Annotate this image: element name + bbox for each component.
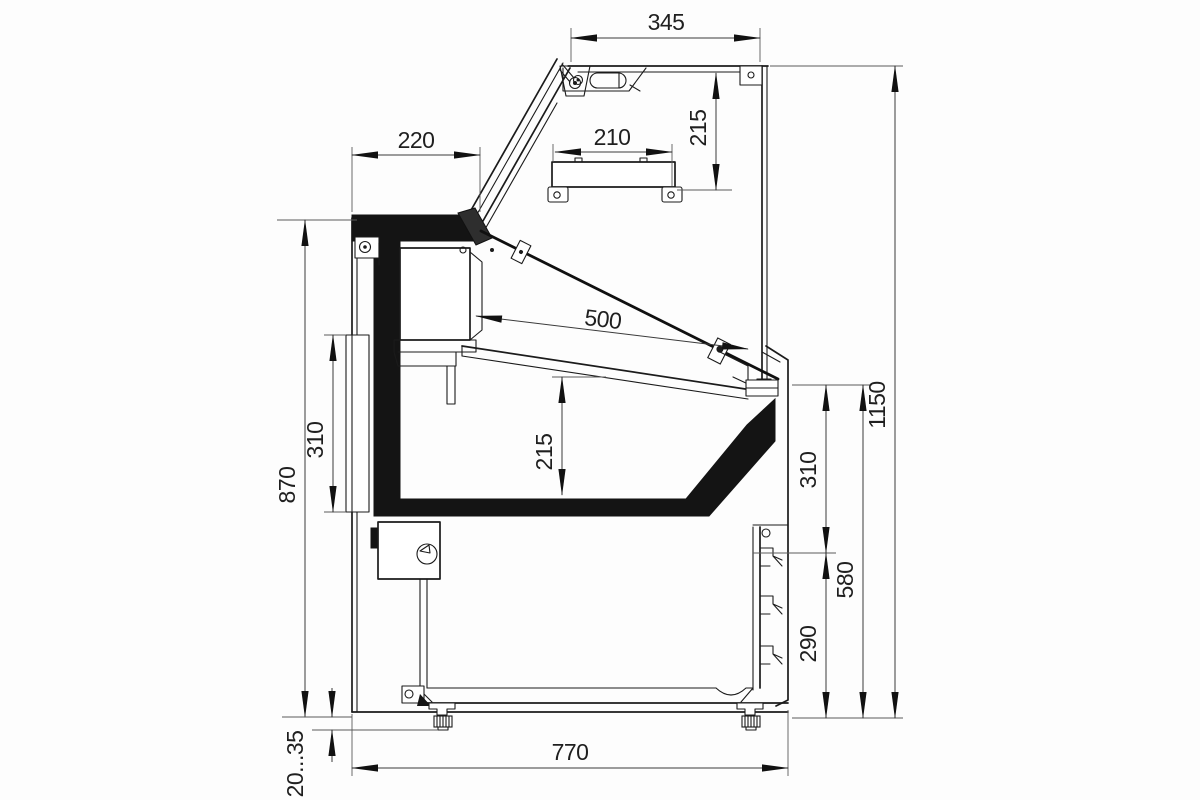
dim-label-215-mid: 215 xyxy=(531,434,557,471)
louver-panel xyxy=(753,525,788,690)
dim-label-215-top: 215 xyxy=(685,110,711,147)
louver-slot-3 xyxy=(760,646,782,664)
dim-label-310-left: 310 xyxy=(302,422,328,459)
dimension-overall-height: 1150 xyxy=(864,66,895,718)
dimension-rear-opening: 310 xyxy=(302,335,346,512)
air-duct-box xyxy=(394,247,482,404)
display-deck xyxy=(462,346,752,399)
rear-sliding-door xyxy=(346,335,369,512)
base-compartment xyxy=(352,522,788,712)
dim-label-870: 870 xyxy=(274,467,300,504)
dim-label-345: 345 xyxy=(648,9,685,35)
drawing-page: 345 215 210 220 500 xyxy=(0,0,1200,800)
louver-slot-1 xyxy=(760,548,782,566)
dim-label-20-35: 20...35 xyxy=(282,731,308,798)
dim-label-310-right: 310 xyxy=(795,452,821,489)
adjustable-foot-right xyxy=(737,703,763,730)
front-glass-closed xyxy=(481,231,778,379)
louver-slot-2 xyxy=(760,596,782,614)
front-corner-profile xyxy=(720,346,788,706)
canopy xyxy=(568,66,768,85)
adjustable-foot-left xyxy=(429,703,455,730)
front-glass xyxy=(757,66,771,387)
dimension-deck-clearance: 215 xyxy=(531,377,606,495)
dim-label-1150: 1150 xyxy=(864,381,890,428)
dimension-base-depth: 770 xyxy=(352,710,788,776)
dim-label-290: 290 xyxy=(795,626,821,663)
case-structure xyxy=(346,59,788,730)
dim-label-500: 500 xyxy=(583,304,623,334)
dimension-body-height: 870 xyxy=(274,220,357,717)
glass-holder-upper xyxy=(511,240,531,263)
dimension-worktop-depth: 220 xyxy=(352,127,480,212)
superstructure-shelf xyxy=(548,158,682,202)
dimension-glass-zone: 310 xyxy=(795,385,826,553)
dimension-canopy-to-shelf: 215 xyxy=(677,73,732,190)
dimension-canopy-width: 345 xyxy=(571,9,760,62)
dim-label-580: 580 xyxy=(832,562,858,599)
dim-label-210: 210 xyxy=(594,124,631,150)
dimension-front-height: 580 xyxy=(832,385,863,718)
glass-holder-lower xyxy=(708,338,730,364)
dim-label-220: 220 xyxy=(398,127,435,153)
dim-label-770: 770 xyxy=(552,739,589,765)
dimension-louver-zone: 290 xyxy=(795,553,826,718)
technical-drawing: 345 215 210 220 500 xyxy=(0,0,1200,800)
